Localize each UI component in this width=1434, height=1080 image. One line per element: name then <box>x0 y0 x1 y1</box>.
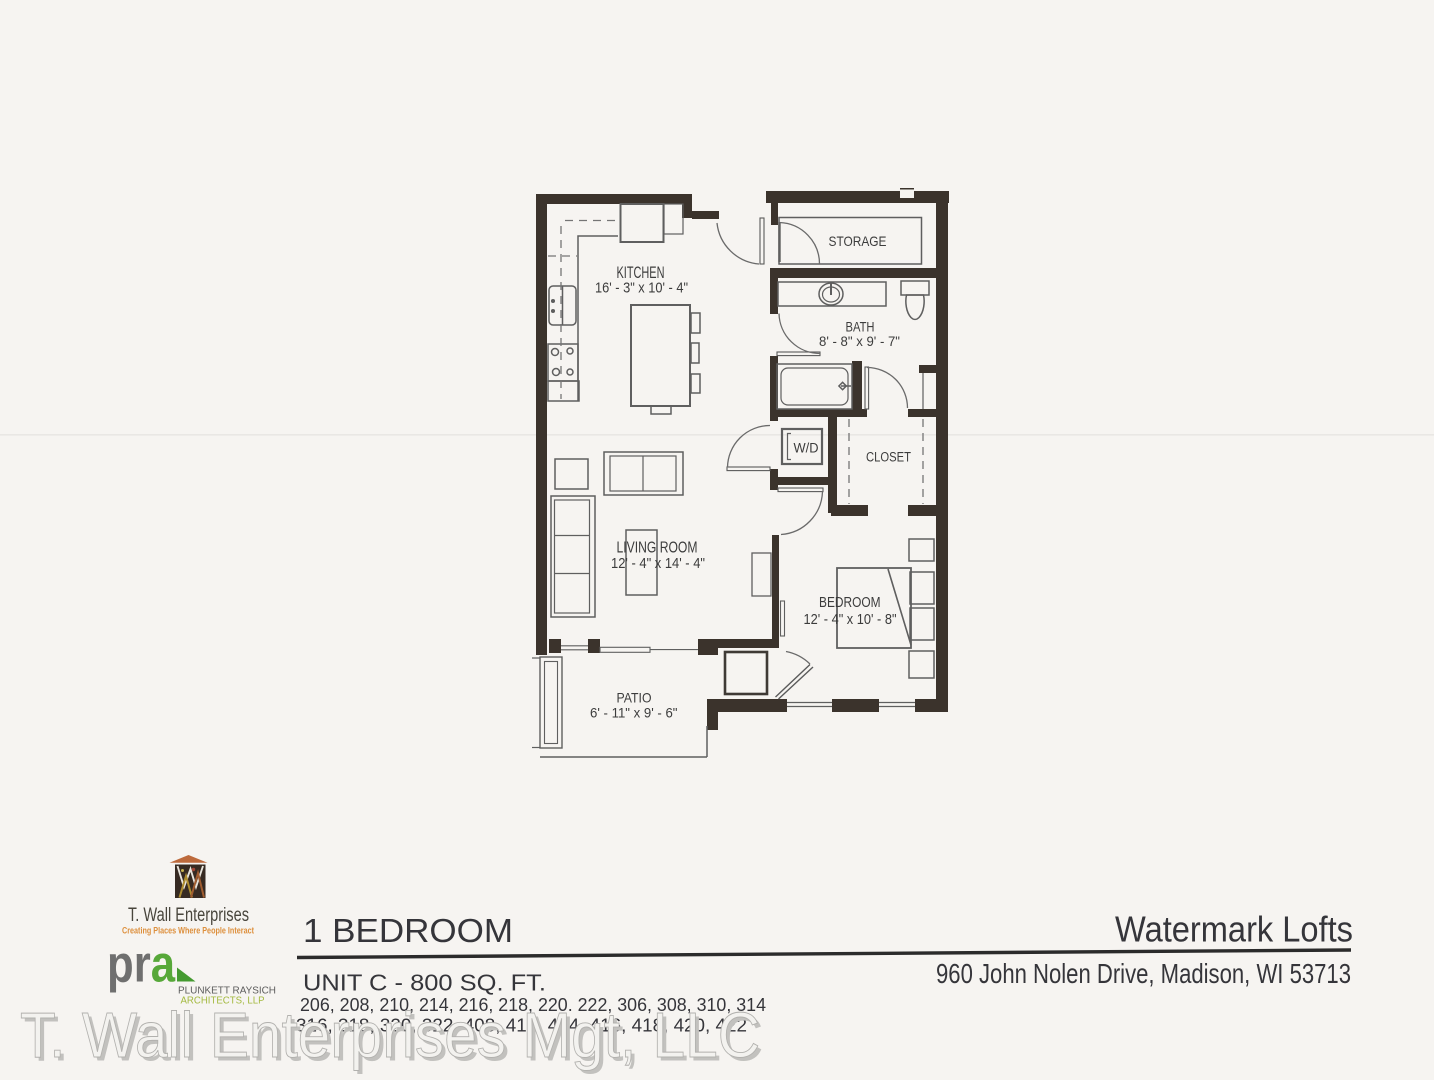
svg-text:pra: pra <box>107 936 176 994</box>
svg-text:16' - 3" x 10' - 4": 16' - 3" x 10' - 4" <box>595 280 688 297</box>
svg-text:12' - 4" x 10' - 8": 12' - 4" x 10' - 8" <box>804 611 897 628</box>
svg-text:Watermark Lofts: Watermark Lofts <box>1115 909 1353 950</box>
svg-text:1 BEDROOM: 1 BEDROOM <box>303 912 513 949</box>
svg-text:BATH: BATH <box>846 320 875 335</box>
svg-text:8' - 8" x 9' - 7": 8' - 8" x 9' - 7" <box>819 334 900 349</box>
svg-text:PATIO: PATIO <box>617 690 652 706</box>
svg-text:T. Wall Enterprises Mgt, LLC: T. Wall Enterprises Mgt, LLC <box>20 999 760 1071</box>
svg-text:UNIT C - 800 SQ. FT.: UNIT C - 800 SQ. FT. <box>303 970 546 996</box>
svg-text:BEDROOM: BEDROOM <box>819 594 881 611</box>
svg-text:6' - 11" x 9' - 6": 6' - 11" x 9' - 6" <box>590 705 678 721</box>
svg-text:12' - 4" x 14' - 4": 12' - 4" x 14' - 4" <box>611 555 705 572</box>
svg-text:LIVING ROOM: LIVING ROOM <box>617 540 698 557</box>
svg-text:T. Wall Enterprises: T. Wall Enterprises <box>128 905 249 926</box>
svg-text:STORAGE: STORAGE <box>829 233 887 249</box>
svg-text:960 John Nolen Drive, Madison,: 960 John Nolen Drive, Madison, WI 53713 <box>936 958 1351 989</box>
svg-text:W/D: W/D <box>794 441 819 456</box>
svg-text:CLOSET: CLOSET <box>866 450 911 465</box>
